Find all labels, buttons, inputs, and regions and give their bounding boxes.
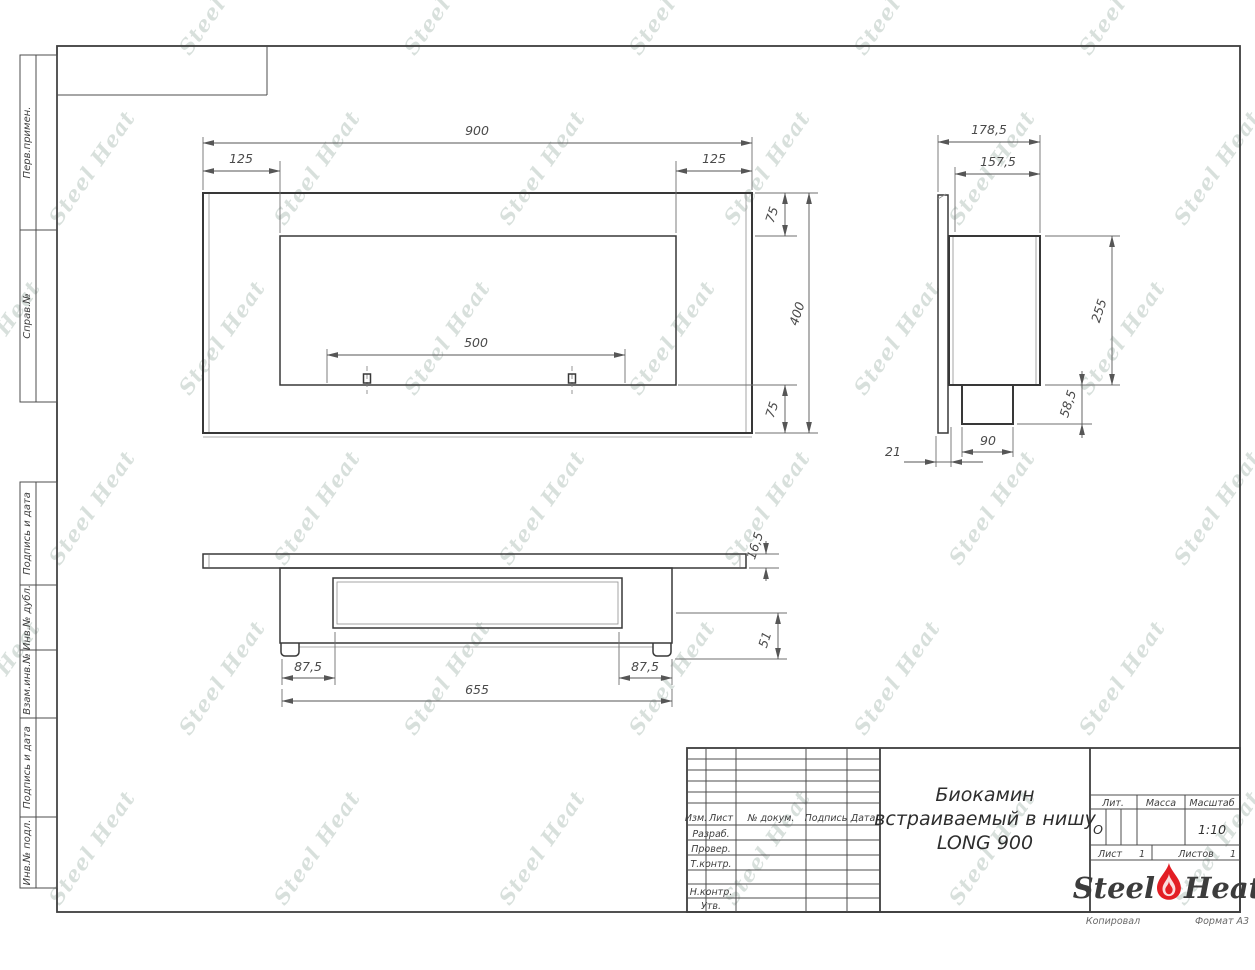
- side-view: 178,5 157,5 255 58,5 90: [885, 122, 1120, 467]
- document-title-line1: Биокамин: [935, 784, 1034, 806]
- format-note: Формат А3: [1195, 916, 1249, 927]
- dim-front-overall-height: 400: [755, 193, 818, 433]
- burner-clip-left: [364, 366, 371, 394]
- dim-value: 178,5: [971, 122, 1007, 137]
- title-block: Изм. Лист № докум. Подпись Дата Разраб. …: [685, 748, 1255, 912]
- footer-notes: Копировал Формат А3: [1086, 916, 1249, 927]
- margin-cell-podpis-data-top: Подпись и дата: [20, 482, 57, 585]
- role-razrab: Разраб.: [692, 829, 729, 840]
- flame-icon: [1157, 863, 1181, 900]
- dim-value: 655: [465, 682, 489, 697]
- logo-heat-text: Heat: [1183, 871, 1255, 905]
- dim-value: 500: [464, 335, 488, 350]
- dim-bottom-panel-thickness: 16,5: [743, 530, 779, 581]
- dim-value: 400: [786, 300, 808, 327]
- role-tkontr: Т.контр.: [690, 859, 731, 870]
- document-title-line3: LONG 900: [937, 832, 1033, 854]
- lit-label: Лит.: [1101, 798, 1124, 809]
- kopiroval-note: Копировал: [1086, 916, 1140, 927]
- margin-cell-vzam-inv: Взам.инв.№: [20, 650, 57, 718]
- logo-steel-text: Steel: [1073, 871, 1155, 905]
- document-title-line2: встраиваемый в нишу: [874, 808, 1096, 830]
- dim-value: 75: [762, 205, 781, 225]
- massa-label: Масса: [1146, 798, 1176, 809]
- masshtab-value: 1:10: [1198, 822, 1226, 837]
- role-prover: Провер.: [691, 844, 730, 855]
- margin-cell-perv-primen: Перв.примен.: [20, 55, 57, 230]
- margin-label: Подпись и дата: [22, 726, 33, 809]
- dim-value: 255: [1088, 297, 1110, 324]
- dim-value: 125: [702, 151, 726, 166]
- dim-value: 75: [762, 400, 781, 420]
- revision-header-data: Дата: [850, 813, 876, 824]
- dim-side-burner-depth: 90: [962, 427, 1013, 457]
- dim-side-burner-height: 58,5: [1017, 371, 1092, 438]
- lit-value: О: [1093, 822, 1103, 837]
- margin-column: Перв.примен. Справ.№ Подпись и дата Инв.…: [20, 55, 57, 888]
- dim-value: 157,5: [980, 154, 1016, 169]
- dim-value: 125: [229, 151, 253, 166]
- dim-side-body-depth: 157,5: [955, 154, 1040, 232]
- revision-header-podpis: Подпись: [805, 813, 848, 824]
- dim-side-overall-depth: 178,5: [938, 122, 1040, 233]
- dim-value: 87,5: [631, 659, 659, 674]
- dim-value: 90: [980, 433, 996, 448]
- bottom-view: 16,5 51 87,5 87,5 655: [203, 530, 787, 707]
- dim-bottom-right-inset: 87,5: [619, 632, 672, 685]
- role-nkontr: Н.контр.: [690, 887, 733, 898]
- sheet-frame: [57, 46, 1240, 912]
- dim-value: 21: [885, 444, 901, 459]
- margin-label: Справ.№: [22, 293, 33, 338]
- revision-header-list: Лист: [708, 813, 734, 824]
- dim-value: 58,5: [1056, 388, 1079, 419]
- margin-cell-sprav-no: Справ.№: [20, 230, 57, 402]
- dim-value: 51: [755, 630, 774, 650]
- list-value: 1: [1139, 849, 1145, 860]
- dim-bottom-body-drop: 51: [675, 613, 787, 659]
- dim-bottom-body-width: 655: [282, 682, 672, 707]
- margin-label: Взам.инв.№: [22, 653, 33, 715]
- margin-cell-inv-dubl: Инв.№ дубл.: [20, 585, 57, 650]
- listov-value: 1: [1230, 849, 1236, 860]
- dim-value: 87,5: [294, 659, 322, 674]
- dim-front-burner-span: 500: [327, 335, 625, 383]
- margin-cell-podpis-data-bottom: Подпись и дата: [20, 718, 57, 817]
- dim-side-panel-offset: 21: [885, 427, 983, 467]
- listov-label: Листов: [1177, 849, 1214, 860]
- margin-cell-inv-podl: Инв.№ подл.: [20, 817, 57, 888]
- masshtab-label: Масштаб: [1189, 798, 1234, 809]
- burner-clip-right: [569, 366, 576, 394]
- dim-value: 900: [465, 123, 489, 138]
- dim-value: 16,5: [743, 530, 766, 561]
- dim-front-overall-width: 900: [203, 123, 752, 190]
- role-utv: Утв.: [701, 901, 721, 912]
- dim-side-body-height: 255: [1045, 236, 1120, 385]
- revision-header-izm: Изм.: [685, 813, 707, 824]
- margin-label: Подпись и дата: [22, 492, 33, 575]
- engineering-drawing-sheet: Перв.примен. Справ.№ Подпись и дата Инв.…: [0, 0, 1255, 970]
- steelheat-logo: Steel Heat: [1073, 863, 1255, 905]
- dim-front-bottom-inset: 75: [678, 385, 797, 433]
- margin-label: Инв.№ дубл.: [21, 585, 33, 650]
- front-view: 900 125 125 500 75 400: [203, 123, 818, 437]
- revision-header-doc: № докум.: [747, 813, 795, 824]
- margin-label: Перв.примен.: [22, 107, 33, 179]
- margin-label: Инв.№ подл.: [22, 820, 33, 886]
- dim-bottom-left-inset: 87,5: [282, 632, 335, 685]
- list-label: Лист: [1097, 849, 1123, 860]
